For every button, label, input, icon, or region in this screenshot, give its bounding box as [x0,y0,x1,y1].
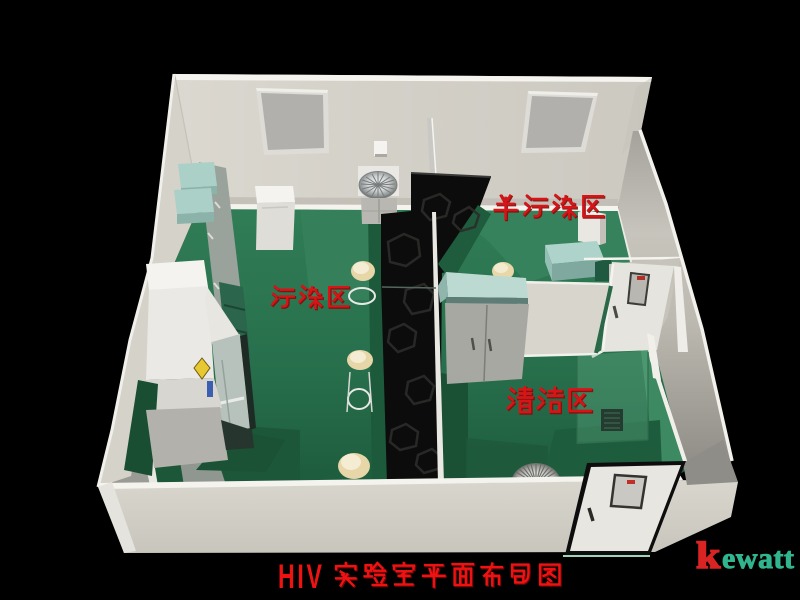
svg-text:k: k [696,535,721,577]
svg-text:HIV: HIV [278,559,325,596]
svg-text:ewatt: ewatt [722,542,794,575]
